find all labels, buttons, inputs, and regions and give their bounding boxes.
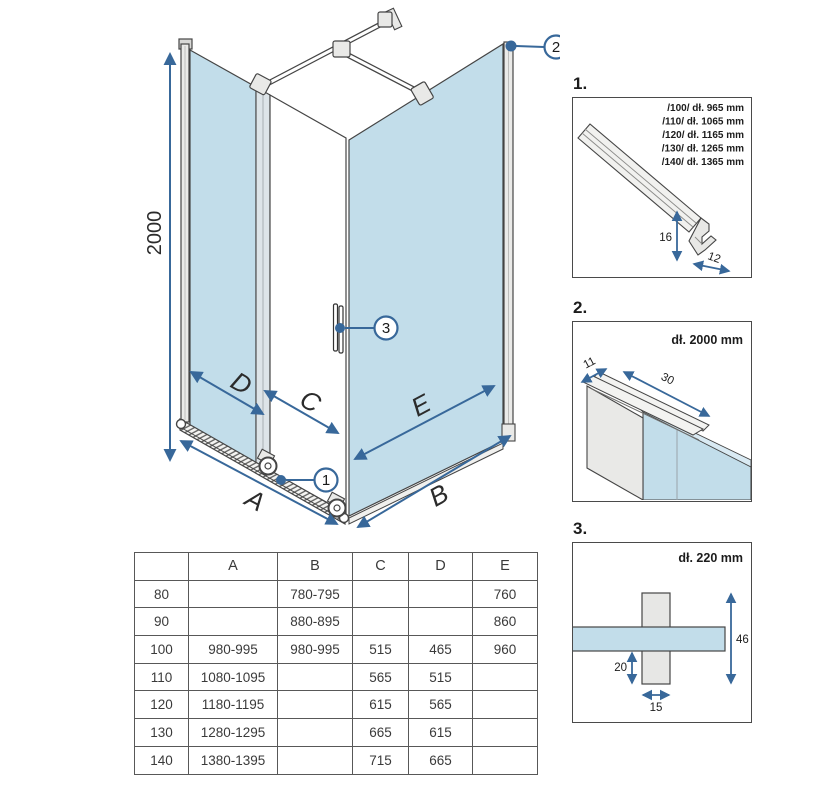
header-d: D (409, 553, 473, 581)
detail-2-box: dł. 2000 mm 11 (572, 321, 752, 502)
glass-panel-left (190, 50, 256, 463)
table-row: 90 880-895 860 (135, 608, 538, 636)
cell-size: 90 (135, 608, 189, 636)
cell-c: 715 (353, 746, 409, 774)
cell-e (473, 719, 538, 747)
header-size (135, 553, 189, 581)
cell-d: 515 (409, 663, 473, 691)
dim-12-label: 12 (706, 250, 722, 266)
dim-height-2000: 2000 (144, 54, 170, 460)
detail-3-dim-lower-height: 20 (614, 653, 632, 683)
cell-c (353, 580, 409, 608)
cell-size: 80 (135, 580, 189, 608)
size-option-100: /100/ dł. 965 mm (667, 103, 744, 114)
cell-a: 1080-1095 (189, 663, 278, 691)
cell-b (278, 719, 353, 747)
cell-b (278, 691, 353, 719)
table-row: 80 780-795 760 (135, 580, 538, 608)
bar-junction-block (333, 41, 350, 57)
cell-d: 665 (409, 746, 473, 774)
header-c: C (353, 553, 409, 581)
size-option-120: /120/ dł. 1165 mm (662, 130, 744, 141)
cell-size: 120 (135, 691, 189, 719)
dim-20-label: 20 (614, 662, 627, 674)
callout-3-number: 3 (382, 320, 390, 337)
cell-e: 760 (473, 580, 538, 608)
cell-b: 980-995 (278, 636, 353, 664)
detail-2-length-label: dł. 2000 mm (671, 333, 743, 347)
wall-bracket (378, 8, 402, 30)
detail-1-number: 1. (573, 74, 752, 94)
cell-d: 465 (409, 636, 473, 664)
size-option-110: /110/ dł. 1065 mm (662, 117, 744, 128)
cell-a: 980-995 (189, 636, 278, 664)
wall-profile-right (502, 42, 515, 441)
detail-3: 3. dł. 220 mm 46 20 (572, 519, 752, 723)
cell-d (409, 580, 473, 608)
dim-16-label: 16 (659, 232, 672, 244)
cell-a: 1280-1295 (189, 719, 278, 747)
wall-profile-glass (583, 372, 751, 500)
shower-enclosure-isometric-drawing: 2000 D C E A B (0, 0, 560, 560)
dim-b-label: B (424, 478, 454, 513)
cell-b (278, 663, 353, 691)
dim-height-label: 2000 (144, 211, 166, 256)
cell-size: 130 (135, 719, 189, 747)
dim-46-label: 46 (736, 634, 749, 646)
header-a: A (189, 553, 278, 581)
dim-30-label: 30 (659, 371, 676, 388)
detail-1-box: /100/ dł. 965 mm /110/ dł. 1065 mm /120/… (572, 97, 752, 278)
glass-panel-right (349, 44, 503, 516)
header-b: B (278, 553, 353, 581)
callout-2-number: 2 (552, 39, 560, 56)
cell-size: 100 (135, 636, 189, 664)
wall-support-bar (261, 20, 389, 87)
cell-e (473, 691, 538, 719)
cell-size: 140 (135, 746, 189, 774)
glass-cross-section (573, 627, 725, 651)
callout-2-dot (506, 41, 517, 52)
dim-15-label: 15 (650, 702, 663, 714)
detail-3-dim-total-height: 46 (731, 594, 749, 683)
table-row: 100 980-995 980-995 515 465 960 (135, 636, 538, 664)
cell-b: 880-895 (278, 608, 353, 636)
cell-c: 565 (353, 663, 409, 691)
detail-3-length-label: dł. 220 mm (678, 551, 743, 565)
cell-e (473, 663, 538, 691)
size-option-140: /140/ dł. 1365 mm (662, 157, 744, 168)
cell-d (409, 608, 473, 636)
callout-2: 2 (506, 36, 561, 59)
cell-c: 515 (353, 636, 409, 664)
detail-2-number: 2. (573, 298, 752, 318)
detail-3-number: 3. (573, 519, 752, 539)
cell-a (189, 580, 278, 608)
size-option-130: /130/ dł. 1265 mm (662, 144, 744, 155)
dim-11-label: 11 (581, 355, 597, 371)
cell-e (473, 746, 538, 774)
technical-drawing-page: 2000 D C E A B (0, 0, 831, 800)
cell-a: 1380-1395 (189, 746, 278, 774)
cell-e: 960 (473, 636, 538, 664)
dim-a-label: A (239, 482, 270, 518)
rail-end-cap-left (177, 420, 186, 429)
cell-c: 615 (353, 691, 409, 719)
table-row: 140 1380-1395 715 665 (135, 746, 538, 774)
table-row: 130 1280-1295 665 615 (135, 719, 538, 747)
table-header-row: A B C D E (135, 553, 538, 581)
cell-a: 1180-1195 (189, 691, 278, 719)
header-e: E (473, 553, 538, 581)
top-support-bars (249, 8, 434, 105)
cell-b: 780-795 (278, 580, 353, 608)
detail-3-dim-width: 15 (643, 695, 669, 714)
cell-d: 615 (409, 719, 473, 747)
cell-e: 860 (473, 608, 538, 636)
cell-size: 110 (135, 663, 189, 691)
table-row: 120 1180-1195 615 565 (135, 691, 538, 719)
cell-d: 565 (409, 691, 473, 719)
cell-c: 665 (353, 719, 409, 747)
detail-1-drawing: /100/ dł. 965 mm /110/ dł. 1065 mm /120/… (573, 98, 751, 277)
cell-a (189, 608, 278, 636)
callout-3-dot (335, 323, 345, 333)
dimensions-table: A B C D E 80 780-795 760 90 880-895 860 … (134, 552, 538, 775)
table-row: 110 1080-1095 565 515 (135, 663, 538, 691)
detail-3-drawing: dł. 220 mm 46 20 15 (573, 543, 751, 722)
detail-2-drawing: dł. 2000 mm 11 (573, 322, 751, 500)
callout-1-number: 1 (322, 472, 330, 489)
detail-2: 2. dł. 2000 mm (572, 298, 752, 502)
panel-support-bar (342, 52, 423, 94)
detail-3-box: dł. 220 mm 46 20 15 (572, 542, 752, 723)
callout-1-dot (276, 475, 286, 485)
cell-b (278, 746, 353, 774)
cell-c (353, 608, 409, 636)
detail-1: 1. /100/ dł. 965 mm /110/ dł. 1065 mm /1… (572, 74, 752, 278)
